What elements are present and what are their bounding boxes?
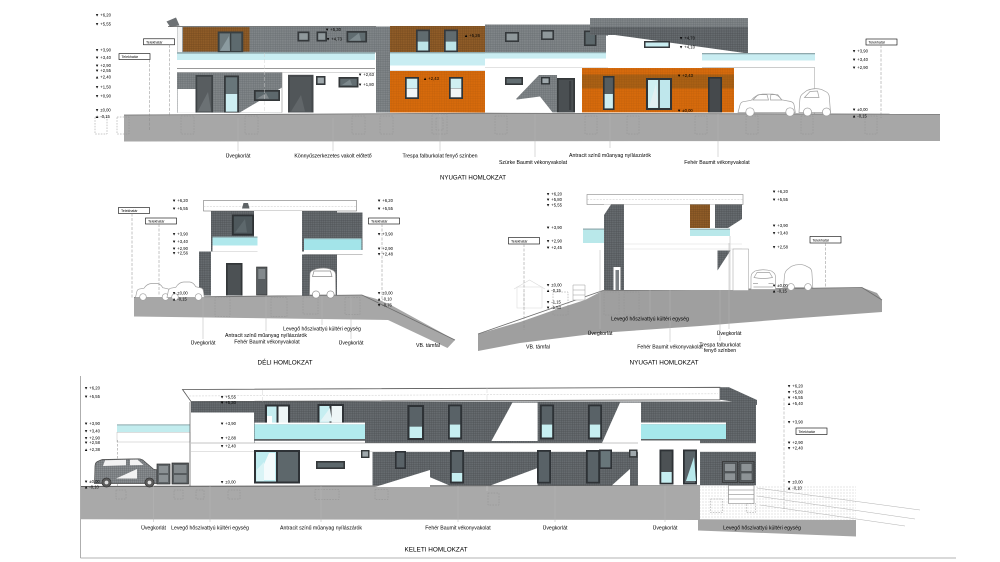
svg-text:▼ +2,88: ▼ +2,88: [220, 436, 237, 441]
svg-text:Telekhatár: Telekhatár: [148, 220, 165, 224]
svg-text:▼ +6,20: ▼ +6,20: [84, 386, 101, 391]
svg-text:▼ +5,30: ▼ +5,30: [325, 27, 342, 32]
svg-text:Szürke Baumit vékonyvakolat: Szürke Baumit vékonyvakolat: [499, 160, 568, 166]
svg-text:▲ +2,40: ▲ +2,40: [95, 75, 112, 80]
svg-text:▼ +6,20: ▼ +6,20: [172, 198, 189, 203]
svg-text:VB. támfal: VB. támfal: [416, 343, 440, 349]
svg-text:▲ -0,15: ▲ -0,15: [95, 114, 111, 119]
svg-text:▼ +3,40: ▼ +3,40: [84, 429, 101, 434]
svg-text:▼ +3,90: ▼ +3,90: [772, 223, 789, 228]
svg-text:Telekhatár: Telekhatár: [511, 239, 528, 243]
svg-text:▼ +3,40: ▼ +3,40: [852, 57, 869, 62]
svg-text:Üvegkorlát: Üvegkorlát: [339, 340, 364, 347]
svg-text:▼ +6,20: ▼ +6,20: [377, 198, 394, 203]
svg-text:▲ +5,26: ▲ +5,26: [464, 33, 481, 38]
svg-text:▼ +2,40: ▼ +2,40: [220, 444, 237, 449]
svg-text:Levegő hőszivattyú kültéri egy: Levegő hőszivattyú kültéri egység: [723, 526, 801, 532]
svg-text:▼ +1,80: ▼ +1,80: [358, 82, 375, 87]
svg-text:Telekhatár: Telekhatár: [371, 220, 388, 224]
svg-text:▼ +6,20: ▼ +6,20: [787, 384, 804, 389]
svg-text:Üvegkorlát: Üvegkorlát: [543, 525, 568, 532]
svg-text:▼ +2,43: ▼ +2,43: [677, 73, 694, 78]
svg-text:▼ +0,90: ▼ +0,90: [95, 94, 112, 99]
svg-text:Telekhatár: Telekhatár: [121, 209, 138, 213]
svg-text:NYUGATI HOMLOKZAT: NYUGATI HOMLOKZAT: [440, 175, 506, 182]
svg-text:Telekhatár: Telekhatár: [122, 55, 139, 59]
svg-text:▼ +6,20: ▼ +6,20: [546, 192, 563, 197]
svg-text:▼ +3,90: ▼ +3,90: [220, 421, 237, 426]
svg-text:▼ ±0,00: ▼ ±0,00: [772, 283, 788, 288]
svg-text:▼ +3,90: ▼ +3,90: [172, 232, 189, 237]
svg-text:▲ -0,15: ▲ -0,15: [546, 288, 562, 293]
svg-text:▼ ±0,00: ▼ ±0,00: [95, 108, 111, 113]
svg-text:▼ +3,90: ▼ +3,90: [95, 48, 112, 53]
svg-text:Levegő hőszivattyú kültéri egy: Levegő hőszivattyú kültéri egység: [611, 317, 689, 323]
svg-text:▼ +6,20: ▼ +6,20: [95, 13, 112, 18]
svg-text:Üvegkorlát: Üvegkorlát: [141, 525, 166, 532]
svg-text:▼ +5,55: ▼ +5,55: [772, 197, 789, 202]
svg-text:▼ +5,55: ▼ +5,55: [220, 395, 237, 400]
svg-text:▼ +2,90: ▼ +2,90: [787, 440, 804, 445]
svg-text:KELETI HOMLOKZAT: KELETI HOMLOKZAT: [405, 547, 468, 554]
svg-text:▼ +3,40: ▼ +3,40: [95, 55, 112, 60]
svg-text:▼ +5,55: ▼ +5,55: [546, 203, 563, 208]
svg-text:▼ +2,56: ▼ +2,56: [172, 250, 189, 255]
svg-text:Telekhatár: Telekhatár: [869, 41, 886, 45]
svg-text:▼ ±0,00: ▼ ±0,00: [172, 291, 188, 296]
svg-text:Könnyűszerkezetes vakolt előte: Könnyűszerkezetes vakolt előtető: [294, 154, 371, 160]
svg-text:▼ ±0,00: ▼ ±0,00: [377, 291, 393, 296]
svg-text:Telekhatár: Telekhatár: [799, 430, 816, 434]
svg-text:▼ +5,55: ▼ +5,55: [377, 206, 394, 211]
svg-text:▼ +2,58: ▼ +2,58: [772, 245, 789, 250]
svg-text:▼ -1,53: ▼ -1,53: [546, 305, 562, 310]
svg-text:Telekhatár: Telekhatár: [146, 40, 163, 44]
svg-text:Fehér Baumit vékonyvakolat: Fehér Baumit vékonyvakolat: [234, 340, 300, 346]
svg-text:▼ +4,10: ▼ +4,10: [679, 45, 696, 50]
svg-text:▼ +4,70: ▼ +4,70: [679, 36, 696, 41]
svg-text:Telekhatár: Telekhatár: [813, 238, 830, 242]
svg-text:▲ +2,38: ▲ +2,38: [84, 447, 101, 452]
svg-text:▼ ±0,00: ▼ ±0,00: [787, 480, 803, 485]
svg-text:▼ +5,55: ▼ +5,55: [172, 206, 189, 211]
svg-text:▼ +5,55: ▼ +5,55: [84, 394, 101, 399]
svg-text:Üvegkorlát: Üvegkorlát: [191, 340, 216, 347]
svg-text:▼ +2,90: ▼ +2,90: [852, 65, 869, 70]
svg-text:▼ +3,90: ▼ +3,90: [84, 421, 101, 426]
svg-text:▼ ±0,00: ▼ ±0,00: [852, 107, 868, 112]
svg-text:▼ +1,50: ▼ +1,50: [95, 85, 112, 90]
svg-text:▼ +3,90: ▼ +3,90: [546, 225, 563, 230]
svg-text:▼ +2,40: ▼ +2,40: [787, 446, 804, 451]
svg-text:Antracit színű műanyag nyílász: Antracit színű műanyag nyílászárók: [280, 526, 362, 532]
svg-text:▼ +5,55: ▼ +5,55: [787, 395, 804, 400]
svg-text:▲ +5,40: ▲ +5,40: [787, 401, 804, 406]
svg-text:▼ +3,90: ▼ +3,90: [852, 49, 869, 54]
svg-text:Trespa falburkolat fenyő színb: Trespa falburkolat fenyő színben: [402, 154, 477, 160]
svg-text:▼ +5,30: ▼ +5,30: [220, 400, 237, 405]
svg-text:▲ -0,10: ▲ -0,10: [787, 486, 803, 491]
svg-text:▲ -0,15: ▲ -0,15: [852, 114, 868, 119]
svg-text:VB. támfal: VB. támfal: [526, 345, 550, 351]
svg-text:▼ ±0,00: ▼ ±0,00: [220, 480, 236, 485]
svg-text:▼ -0,76: ▼ -0,76: [377, 303, 393, 308]
svg-text:▼ +2,90: ▼ +2,90: [377, 246, 394, 251]
svg-text:▼ +5,55: ▼ +5,55: [95, 22, 112, 27]
svg-text:▼ +3,90: ▼ +3,90: [377, 232, 394, 237]
svg-text:▲ -0,15: ▲ -0,15: [172, 297, 188, 302]
svg-text:▼ +2,90: ▼ +2,90: [546, 239, 563, 244]
svg-text:▼ +2,48: ▼ +2,48: [377, 252, 394, 257]
svg-text:NYUGATI HOMLOKZAT: NYUGATI HOMLOKZAT: [630, 360, 699, 367]
svg-text:Üvegkorlát: Üvegkorlát: [653, 525, 678, 532]
svg-text:▼ +2,45: ▼ +2,45: [546, 245, 563, 250]
svg-text:Üvegkorlát: Üvegkorlát: [588, 330, 613, 337]
svg-text:▼ ±0,00: ▼ ±0,00: [546, 283, 562, 288]
svg-text:▼ +2,63: ▼ +2,63: [358, 72, 375, 77]
svg-text:▼ -1,15: ▼ -1,15: [546, 300, 562, 305]
svg-text:Antracit színű műanyag nyílász: Antracit színű műanyag nyílászárók: [225, 333, 307, 339]
svg-text:▼ +4,73: ▼ +4,73: [326, 37, 343, 42]
svg-text:▲ +2,43: ▲ +2,43: [423, 76, 440, 81]
svg-text:▼ +2,55: ▼ +2,55: [95, 68, 112, 73]
svg-text:Üvegkorlát: Üvegkorlát: [717, 330, 742, 337]
svg-text:▼ +2,58: ▼ +2,58: [84, 440, 101, 445]
svg-text:DÉLI HOMLOKZAT: DÉLI HOMLOKZAT: [258, 358, 313, 367]
svg-text:Üvegkorlát: Üvegkorlát: [226, 153, 251, 160]
svg-text:▼ ±0,00: ▼ ±0,00: [84, 479, 100, 484]
svg-text:▼ +5,80: ▼ +5,80: [787, 390, 804, 395]
svg-text:▼ +3,40: ▼ +3,40: [172, 239, 189, 244]
svg-text:▼ +3,90: ▼ +3,90: [787, 420, 804, 425]
svg-text:▲ -0,15: ▲ -0,15: [772, 289, 788, 294]
svg-text:Fehér Baumit vékonyvakolat: Fehér Baumit vékonyvakolat: [684, 160, 750, 166]
svg-text:▲ -0,10: ▲ -0,10: [377, 297, 393, 302]
svg-text:Levegő hőszivattyú kültéri egy: Levegő hőszivattyú kültéri egység: [171, 526, 249, 532]
svg-text:Antracit színű műanyag nyílász: Antracit színű műanyag nyílászárók: [569, 153, 651, 159]
svg-text:fenyő színben: fenyő színben: [704, 348, 736, 354]
svg-text:▼ +3,40: ▼ +3,40: [772, 231, 789, 236]
svg-text:▼ ±0,00: ▼ ±0,00: [677, 108, 693, 113]
svg-text:▼ +6,20: ▼ +6,20: [772, 189, 789, 194]
svg-text:Fehér Baumit vékonyvakolat: Fehér Baumit vékonyvakolat: [637, 345, 703, 351]
svg-text:▼ +5,80: ▼ +5,80: [546, 197, 563, 202]
svg-text:Levegő hőszivattyú kültéri egy: Levegő hőszivattyú kültéri egység: [283, 327, 361, 333]
svg-text:Fehér Baumit vékonyvakolat: Fehér Baumit vékonyvakolat: [425, 526, 491, 532]
svg-text:▲ -0,10: ▲ -0,10: [84, 485, 100, 490]
